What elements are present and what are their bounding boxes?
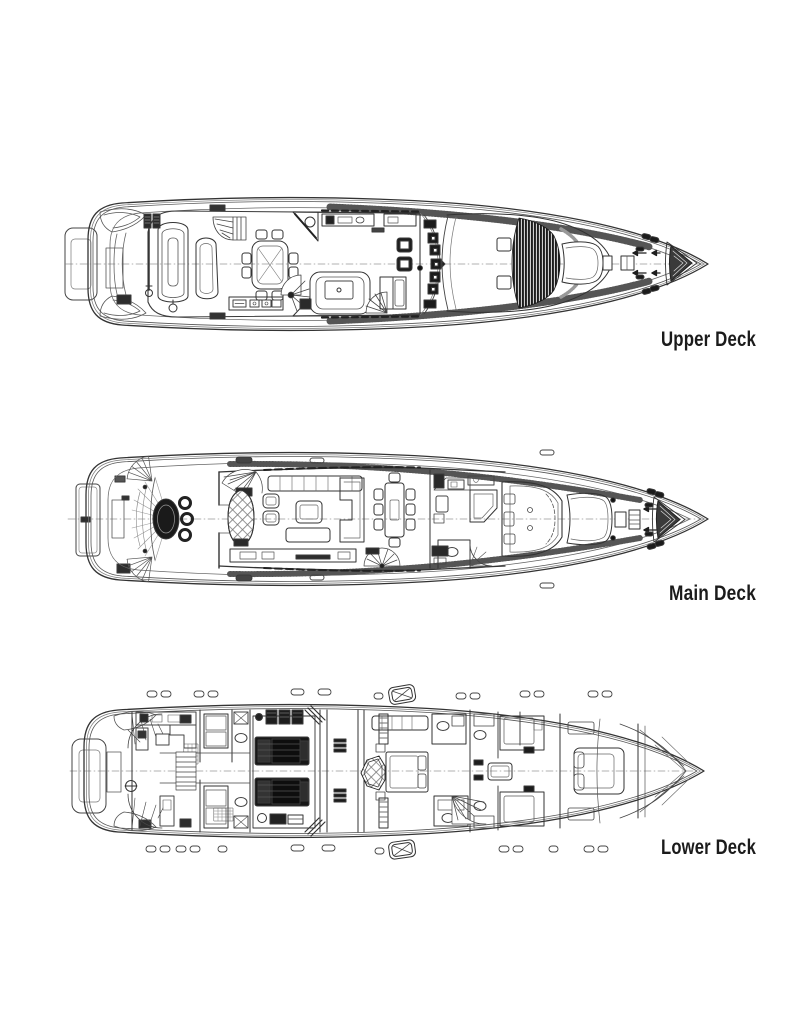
svg-text:Lower Deck: Lower Deck (661, 836, 756, 859)
svg-text:Upper Deck: Upper Deck (661, 328, 756, 351)
svg-text:Main Deck: Main Deck (669, 582, 756, 605)
